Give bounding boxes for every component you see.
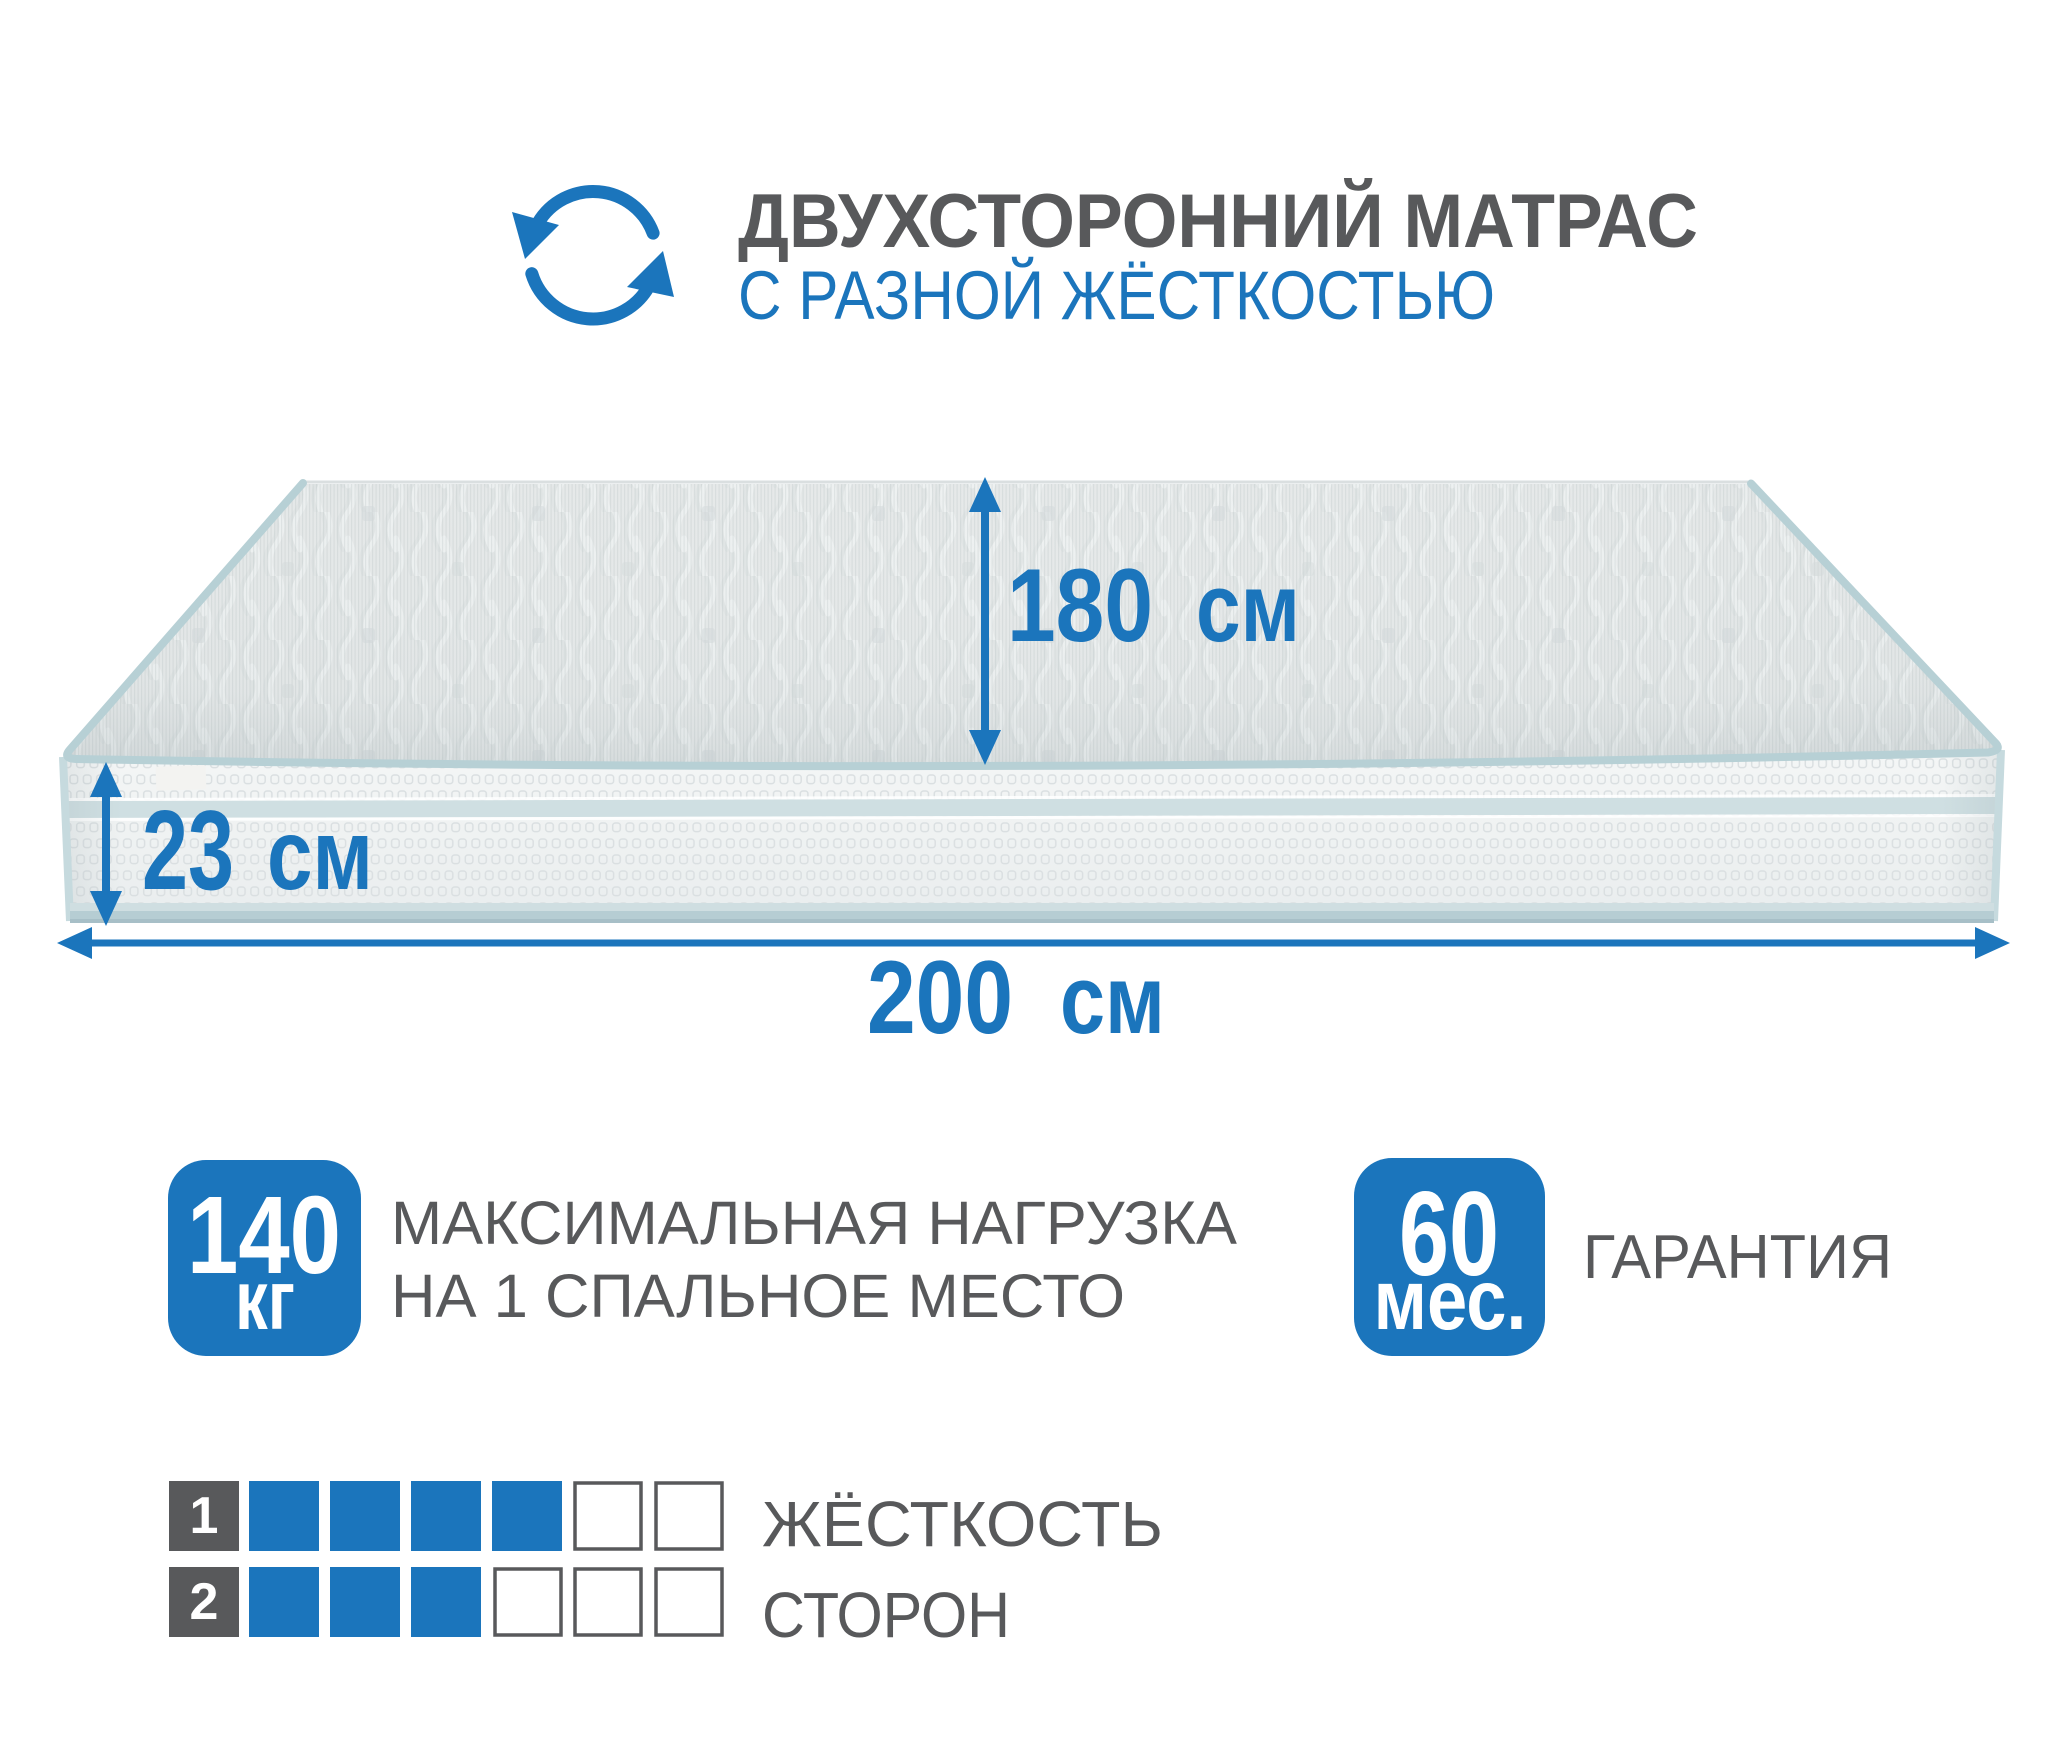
svg-text:МАКСИМАЛЬНАЯ НАГРУЗКА: МАКСИМАЛЬНАЯ НАГРУЗКА (391, 1189, 1237, 1257)
svg-text:200: 200 (867, 940, 1013, 1056)
svg-text:2: 2 (190, 1573, 219, 1631)
svg-text:ГАРАНТИЯ: ГАРАНТИЯ (1583, 1223, 1892, 1292)
svg-text:23: 23 (142, 787, 234, 913)
svg-text:ДВУХСТОРОННИЙ МАТРАС: ДВУХСТОРОННИЙ МАТРАС (738, 178, 1698, 264)
svg-text:ЖЁСТКОСТЬ: ЖЁСТКОСТЬ (762, 1488, 1163, 1560)
svg-text:С РАЗНОЙ ЖЁСТКОСТЬЮ: С РАЗНОЙ ЖЁСТКОСТЬЮ (738, 257, 1495, 334)
svg-text:180: 180 (1007, 548, 1153, 664)
svg-text:мес.: мес. (1374, 1253, 1527, 1348)
svg-text:СТОРОН: СТОРОН (762, 1579, 1010, 1651)
svg-text:см: см (1060, 945, 1165, 1054)
svg-text:1: 1 (190, 1487, 219, 1545)
svg-text:см: см (267, 799, 373, 911)
svg-text:НА 1 СПАЛЬНОЕ МЕСТО: НА 1 СПАЛЬНОЕ МЕСТО (391, 1262, 1125, 1330)
svg-text:кг: кг (235, 1253, 295, 1347)
svg-text:см: см (1196, 553, 1300, 662)
